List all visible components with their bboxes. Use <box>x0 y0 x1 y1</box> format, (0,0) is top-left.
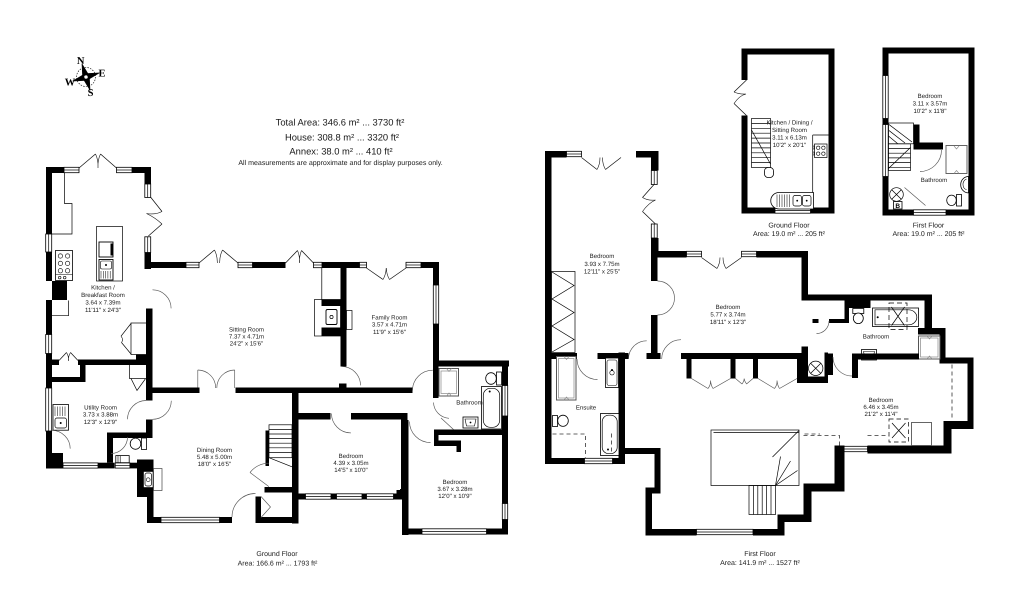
svg-text:Utility Room: Utility Room <box>84 404 117 411</box>
svg-text:Bedroom: Bedroom <box>339 453 364 460</box>
svg-text:21'2" x 11'4": 21'2" x 11'4" <box>865 411 898 418</box>
svg-text:12'3" x 12'9": 12'3" x 12'9" <box>84 419 117 426</box>
svg-text:Ensuite: Ensuite <box>576 405 597 412</box>
svg-text:Ground Floor: Ground Floor <box>256 550 298 558</box>
svg-text:24'2" x 15'6": 24'2" x 15'6" <box>230 341 263 348</box>
svg-text:W: W <box>65 78 76 89</box>
svg-text:Bedroom: Bedroom <box>716 304 741 311</box>
svg-text:E: E <box>98 69 105 80</box>
svg-text:S: S <box>88 88 94 99</box>
svg-text:Area: 166.6 m² ... 1793 ft²: Area: 166.6 m² ... 1793 ft² <box>238 560 318 568</box>
svg-text:14'5" x 10'0": 14'5" x 10'0" <box>334 467 367 474</box>
svg-text:5.48 x 5.00m: 5.48 x 5.00m <box>197 454 232 461</box>
svg-text:3.57 x 4.71m: 3.57 x 4.71m <box>372 322 407 329</box>
svg-text:Sitting Room: Sitting Room <box>229 326 264 333</box>
svg-text:6.46 x 3.45m: 6.46 x 3.45m <box>863 404 898 411</box>
svg-text:12'11" x 25'5": 12'11" x 25'5" <box>584 269 620 276</box>
svg-text:Bathroom: Bathroom <box>921 177 947 184</box>
svg-text:3.73 x 3.88m: 3.73 x 3.88m <box>83 412 118 419</box>
svg-text:5.77 x 3.74m: 5.77 x 3.74m <box>710 312 745 319</box>
svg-text:3.11 x 6.13m: 3.11 x 6.13m <box>772 135 807 142</box>
svg-text:11'9" x 15'6": 11'9" x 15'6" <box>373 329 406 336</box>
svg-text:7.37 x 4.71m: 7.37 x 4.71m <box>229 334 264 341</box>
svg-text:All measurements are approxima: All measurements are approximate and for… <box>238 159 442 167</box>
svg-text:Bedroom: Bedroom <box>918 93 943 100</box>
svg-text:Area: 141.9 m² ... 1527 ft²: Area: 141.9 m² ... 1527 ft² <box>720 559 800 567</box>
svg-text:11'11" x 24'3": 11'11" x 24'3" <box>85 307 121 314</box>
svg-text:Bedroom: Bedroom <box>443 479 468 486</box>
svg-text:Breakfast Room: Breakfast Room <box>81 292 125 299</box>
svg-text:3.64 x 7.39m: 3.64 x 7.39m <box>85 300 120 307</box>
svg-text:Sitting Room: Sitting Room <box>772 127 807 134</box>
svg-text:Bathroom: Bathroom <box>863 334 889 341</box>
svg-text:Area: 19.0 m² ... 205 ft²: Area: 19.0 m² ... 205 ft² <box>893 230 966 238</box>
svg-text:Dining Room: Dining Room <box>197 447 232 454</box>
svg-text:Bedroom: Bedroom <box>869 397 894 404</box>
svg-text:Total Area: 346.6 m² ... 3730: Total Area: 346.6 m² ... 3730 ft² <box>276 117 405 128</box>
svg-text:B: B <box>895 203 900 210</box>
svg-text:Bedroom: Bedroom <box>590 253 615 260</box>
svg-text:Area: 19.0 m² ... 205 ft²: Area: 19.0 m² ... 205 ft² <box>753 230 826 238</box>
svg-text:10'2" x 11'8": 10'2" x 11'8" <box>914 108 947 115</box>
svg-text:Family Room: Family Room <box>372 315 408 322</box>
svg-text:Annex: 38.0 m² ... 410 ft²: Annex: 38.0 m² ... 410 ft² <box>289 146 392 157</box>
svg-text:Bathroom: Bathroom <box>456 400 482 407</box>
svg-text:Ground Floor: Ground Floor <box>768 222 810 230</box>
svg-text:10'2" x 20'1": 10'2" x 20'1" <box>773 142 806 149</box>
svg-text:First Floor: First Floor <box>744 550 776 558</box>
svg-text:4.39 x 3.05m: 4.39 x 3.05m <box>333 460 368 467</box>
svg-text:18'0" x 16'5": 18'0" x 16'5" <box>198 461 231 468</box>
svg-text:House: 308.8 m² ... 3320 ft²: House: 308.8 m² ... 3320 ft² <box>285 132 399 143</box>
svg-text:3.11 x 3.57m: 3.11 x 3.57m <box>913 101 948 108</box>
svg-text:12'0" x 10'9": 12'0" x 10'9" <box>438 493 471 500</box>
svg-text:Kitchen / Dining /: Kitchen / Dining / <box>766 120 812 127</box>
svg-text:Kitchen /: Kitchen / <box>91 285 115 292</box>
svg-text:First Floor: First Floor <box>913 222 945 230</box>
svg-text:3.67 x 3.28m: 3.67 x 3.28m <box>437 486 472 493</box>
svg-text:3.93 x 7.75m: 3.93 x 7.75m <box>584 261 619 268</box>
svg-text:18'11" x 12'3": 18'11" x 12'3" <box>710 319 746 326</box>
svg-text:N: N <box>77 56 85 67</box>
